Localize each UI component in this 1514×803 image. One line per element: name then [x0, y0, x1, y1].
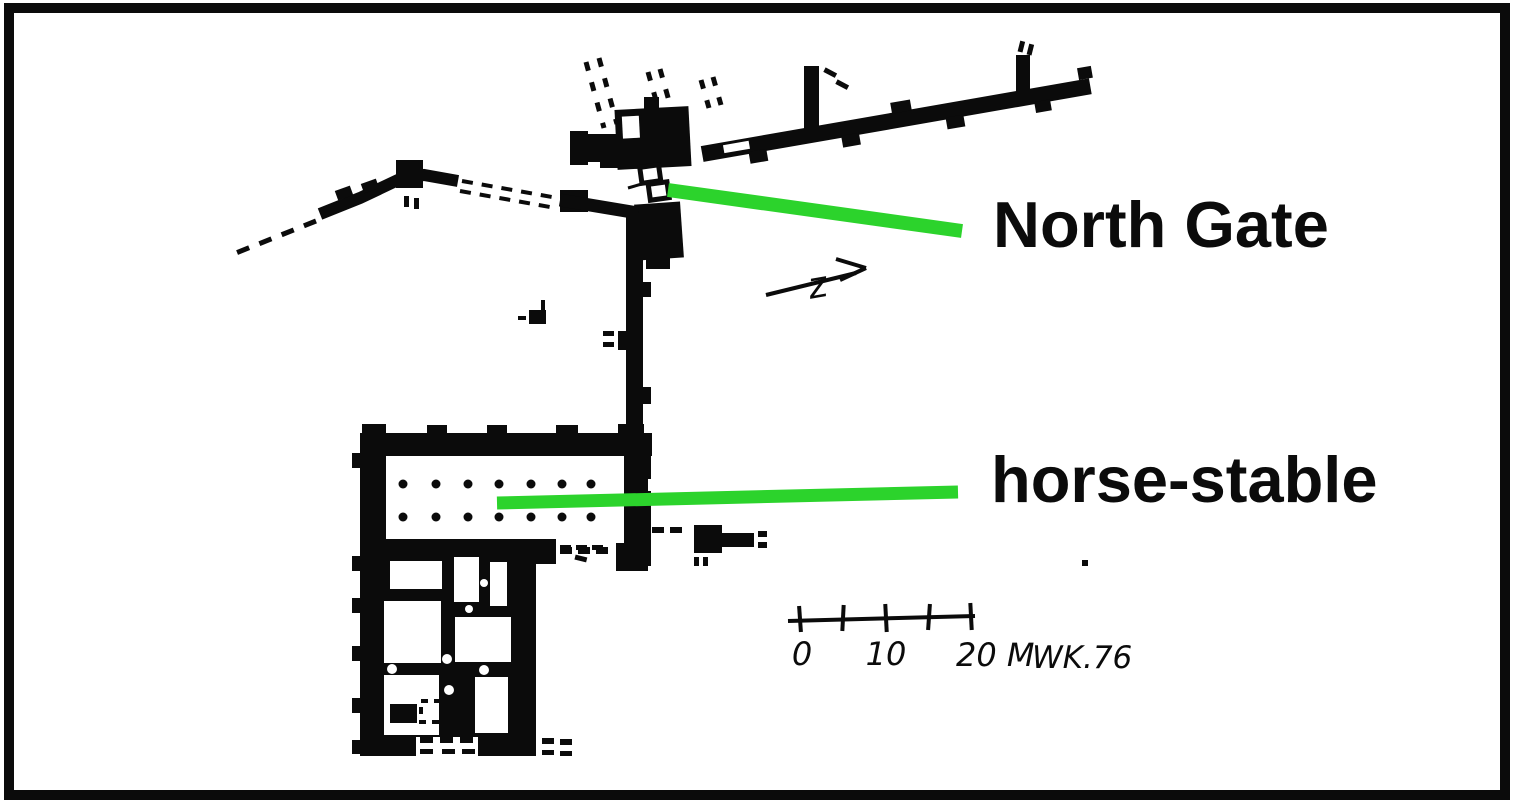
callout-line-north-gate: [668, 190, 962, 231]
scale-bar: 0 10 20 M WK.76: [788, 603, 1132, 676]
east-annex: [652, 525, 767, 566]
west-curtain-wall: [236, 160, 638, 253]
site-plan-drawing: z 0 10 20 M WK.76: [0, 0, 1514, 803]
image-border: [9, 8, 1505, 795]
ink-speck: [1082, 560, 1088, 566]
label-horse-stable: horse-stable: [991, 447, 1378, 512]
east-curtain-wall: [699, 66, 1098, 172]
north-arrow-icon: z: [766, 259, 866, 308]
vertical-wall: [518, 214, 651, 438]
scale-label-20m: 20 M: [956, 636, 1035, 674]
site-plan-page: z 0 10 20 M WK.76 North Gate horse-stabl…: [0, 0, 1514, 803]
scale-credit: WK.76: [1032, 640, 1132, 676]
scale-label-10: 10: [866, 635, 907, 673]
scale-label-0: 0: [792, 635, 812, 673]
label-north-gate: North Gate: [993, 192, 1329, 257]
lower-building-complex: [352, 545, 572, 756]
north-arrow-glyph: z: [804, 264, 832, 308]
